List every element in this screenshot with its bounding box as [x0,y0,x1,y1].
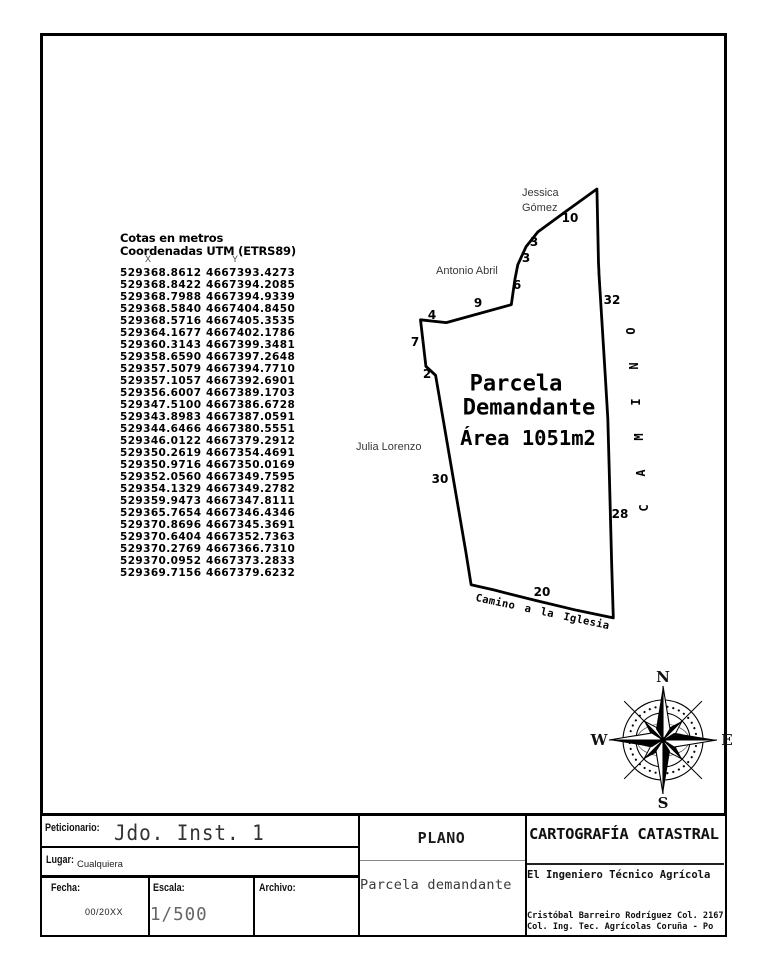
coordinate-row: 529368.86124667393.4273 [120,267,295,279]
peticionario-value: Jdo. Inst. 1 [114,821,265,845]
coordinate-row: 529350.26194667354.4691 [120,447,295,459]
plan-sheet: Cotas en metros Coordenadas UTM (ETRS89)… [0,0,764,970]
coordinate-row: 529370.64044667352.7363 [120,531,295,543]
compass-rose: N S E W [590,662,738,814]
coordinate-row: 529368.79884667394.9339 [120,291,295,303]
coordinate-row: 529360.31434667399.3481 [120,339,295,351]
lugar-value: Cualquiera [77,859,123,870]
fecha-label: Fecha: [51,882,80,894]
coords-title: Cotas en metros [120,231,223,245]
coordinate-row: 529352.05604667349.7595 [120,471,295,483]
plano-label: PLANO [418,829,466,847]
compass-center-dot [660,737,666,743]
coordinate-row: 529368.58404667404.8450 [120,303,295,315]
coordinate-row: 529350.97164667350.0169 [120,459,295,471]
coordinate-row: 529356.60074667389.1703 [120,387,295,399]
coordinate-row: 529368.84224667394.2085 [120,279,295,291]
lugar-label: Lugar: [46,854,74,866]
escala-value: 1/500 [150,905,208,925]
titleblock-hline-1 [42,846,358,848]
coords-col-y: Y [232,254,238,264]
plano-value: Parcela demandante [360,877,512,893]
plano-header-cell: PLANO [358,816,525,860]
cartografia-title: CARTOGRAFÍA CATASTRAL [529,825,719,843]
coordinate-row: 529354.13294667349.2782 [120,483,295,495]
coordinate-row: 529357.50794667394.7710 [120,363,295,375]
titleblock-vline-escala [253,877,255,935]
coordinate-row: 529364.16774667402.1786 [120,327,295,339]
peticionario-label: Peticionario: [45,822,100,834]
coordinate-row: 529369.71564667379.6232 [120,567,295,579]
fecha-value: 00/20XX [85,907,123,917]
compass-north-label: N [656,668,670,686]
coordinate-row: 529370.86964667345.3691 [120,519,295,531]
titleblock-right-divider [527,863,724,865]
coordinate-row: 529344.64664667380.5551 [120,423,295,435]
title-block: Peticionario: Jdo. Inst. 1 Lugar: Cualqu… [40,816,727,937]
coordinate-rows: 529368.86124667393.4273529368.8422466739… [120,267,295,579]
coordinate-row: 529365.76544667346.4346 [120,507,295,519]
coordinate-row: 529357.10574667392.6901 [120,375,295,387]
compass-west-label: W [590,731,609,749]
coordinate-row: 529347.51004667386.6728 [120,399,295,411]
coords-col-x: X [145,254,151,264]
coordinate-row: 529359.94734667347.8111 [120,495,295,507]
coordinate-row: 529343.89834667387.0591 [120,411,295,423]
coordinate-row: 529370.27694667366.7310 [120,543,295,555]
escala-label: Escala: [153,882,185,894]
compass-east-label: E [721,731,732,749]
engineer-title: El Ingeniero Técnico Agrícola [527,869,710,881]
credit-line2: Col. Ing. Tec. Agrícolas Coruña - Po [527,922,713,932]
coordinate-row: 529358.65904667397.2648 [120,351,295,363]
coordinate-row: 529370.09524667373.2833 [120,555,295,567]
titleblock-mid-divider [360,860,525,861]
coordinate-row: 529346.01224667379.2912 [120,435,295,447]
coordinate-row: 529368.57164667405.3535 [120,315,295,327]
archivo-label: Archivo: [259,882,296,894]
compass-south-label: S [658,794,669,812]
titleblock-hline-2 [42,875,358,878]
credit-line1: Cristóbal Barreiro Rodríguez Col. 2167 [527,911,724,921]
